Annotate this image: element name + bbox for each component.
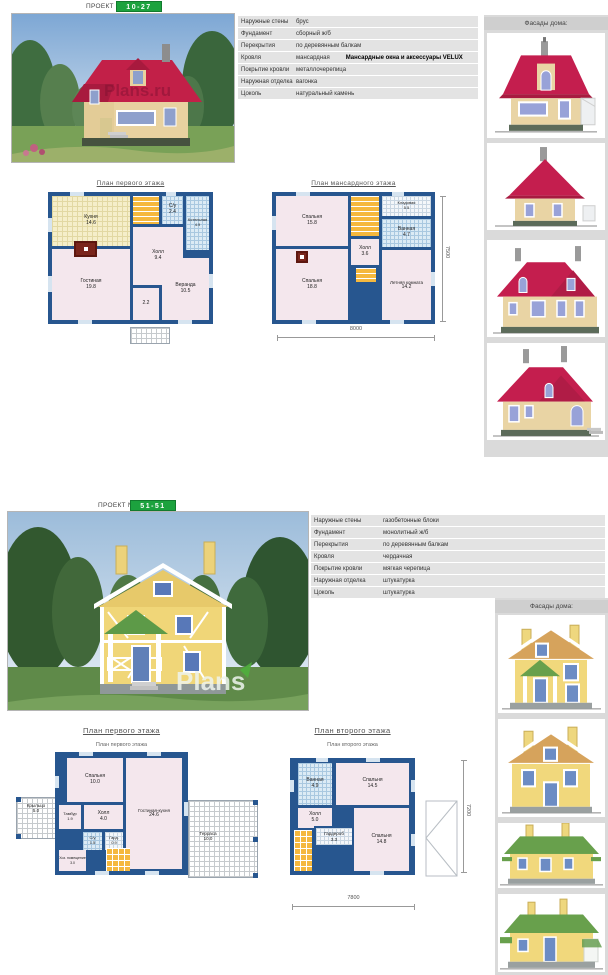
- terrace-area: Терраса10.0: [188, 800, 258, 878]
- spec-value: чердачная: [383, 554, 605, 560]
- porch-post: [16, 797, 21, 802]
- facade-back-view: [498, 719, 605, 817]
- window-mark: [78, 320, 92, 324]
- facades-title: Фасады дома:: [484, 17, 608, 30]
- window-mark: [145, 871, 159, 875]
- room-storage: Кладовая5.5: [382, 196, 431, 216]
- window-mark: [48, 218, 52, 232]
- photo-watermark-1: Plans.ru: [104, 81, 171, 100]
- window-mark: [370, 871, 384, 875]
- velux-note: Мансардные окна и аксессуары VELUX: [346, 55, 463, 61]
- plan2-title: План второго этажа: [290, 726, 415, 735]
- porch-hatch: [130, 327, 170, 344]
- dimension-line: [463, 760, 464, 873]
- spec-row: Покрытие кровлиметаллочерепица: [238, 64, 478, 75]
- room-kitchen: Кухня14.6: [52, 196, 130, 246]
- room-living: Гостиная19.8: [52, 249, 130, 320]
- spec-label: Покрытие кровли: [238, 67, 296, 73]
- facade-side-2-image: [487, 343, 605, 440]
- terrace-post: [253, 837, 258, 842]
- terrace-post: [253, 800, 258, 805]
- spec-value: по деревянным балкам: [296, 43, 478, 49]
- spec-row: Перекрытияпо деревянным балкам: [238, 40, 478, 51]
- facades-panel-2: Фасады дома:: [495, 598, 608, 975]
- spec-row: Цокольнатуральный камень: [238, 88, 478, 99]
- facade-back-image: [498, 719, 605, 817]
- floor-plan-1-1: Кухня14.6 С/у2.4 Котельная4.9 Холл9.4 Го…: [48, 192, 213, 324]
- spec-label: Наружные стены: [311, 518, 383, 524]
- mini-stairs: [356, 268, 376, 282]
- window-mark: [48, 276, 52, 292]
- dimension-width: 7800: [292, 895, 415, 901]
- facade-side-view-1: [498, 823, 605, 888]
- spec-label: Кровля: [238, 55, 296, 61]
- spec-value: вагонка: [296, 79, 478, 85]
- spec-row: Наружные стеныбрус: [238, 16, 478, 27]
- window-mark: [209, 274, 213, 288]
- plan2-subtitle: План второго этажа: [290, 742, 415, 748]
- house-photo-1: Plans.ru: [12, 14, 234, 162]
- facade-side-1-image: [487, 240, 605, 337]
- spec-row: Покрытие кровлимягкая черепица: [311, 563, 605, 574]
- plan2-title: План мансардного этажа: [272, 180, 435, 187]
- spec-label: Цоколь: [238, 91, 296, 97]
- house-photo-2: Plans: [8, 512, 308, 710]
- floor-plan-2-1: Спальня10.0 Гостиная-кухня24.6 Тамбур1.9…: [55, 752, 188, 875]
- room-bedroom-2: Спальня18.8: [276, 249, 348, 320]
- room-porch: Крыльцо5.0: [17, 800, 55, 816]
- stairs: [133, 196, 159, 224]
- room-bedroom-2: Спальня14.8: [354, 808, 409, 871]
- window-mark: [316, 758, 328, 762]
- spec-row: Фундаментмонолитный ж/б: [311, 527, 605, 538]
- room-tambour: Тамбур1.9: [59, 805, 81, 829]
- room-hall: Холл5.0: [298, 808, 332, 828]
- window-mark: [392, 192, 404, 196]
- floor-plan-2-2: Ванная4.9 Спальня14.5 Холл5.0 Гардероб3.…: [290, 758, 415, 875]
- spec-label: Покрытие кровли: [311, 566, 383, 572]
- facade-front-view: [487, 33, 605, 138]
- facade-front-image: [498, 615, 605, 713]
- floor-plan-1-2: Спальня15.8 Кладовая5.5 Ванная4.7 Холл3.…: [272, 192, 435, 324]
- stairs: [294, 830, 312, 871]
- spec-label: Наружная отделка: [238, 79, 296, 85]
- room-bedroom-1: Спальня14.5: [336, 763, 409, 805]
- room-small: 2.2: [133, 288, 159, 320]
- garage-outline: [418, 800, 458, 877]
- facade-front-view: [498, 615, 605, 713]
- spec-value: натуральный камень: [296, 91, 478, 97]
- spec-row: Кровлячердачная: [311, 551, 605, 562]
- plan1-title: План первого этажа: [55, 726, 188, 735]
- spec-label: Фундамент: [311, 530, 383, 536]
- spec-table-1: Наружные стеныбрус Фундаментсборный ж/б …: [238, 16, 478, 100]
- stairs: [351, 196, 379, 236]
- room-living-kitchen: Гостиная-кухня24.6: [126, 758, 182, 869]
- facades-panel-1: Фасады дома:: [484, 15, 608, 457]
- fireplace-icon: [74, 241, 97, 257]
- spec-label: Наружная отделка: [311, 578, 383, 584]
- window-mark: [302, 320, 316, 324]
- facade-side-2-image: [498, 894, 605, 972]
- window-mark: [366, 758, 380, 762]
- room-veranda: Веранда10.5: [162, 258, 209, 320]
- spec-label: Перекрытия: [311, 542, 383, 548]
- spec-row: Перекрытияпо деревянным балкам: [311, 539, 605, 550]
- project-number-badge: 10-27: [116, 1, 162, 12]
- window-mark: [166, 192, 176, 196]
- spec-row: Наружная отделкавагонка: [238, 76, 478, 87]
- dimension-height: 7200: [465, 804, 471, 816]
- room-bathroom: Ванная4.7: [382, 219, 431, 247]
- spec-label: Цоколь: [311, 590, 383, 596]
- spec-row: Цокольштукатурка: [311, 587, 605, 598]
- room-bedroom: Спальня10.0: [67, 758, 123, 802]
- house-photo-1-image: Plans.ru: [12, 14, 234, 162]
- photo-watermark-2: Plans: [176, 666, 245, 696]
- window-mark: [411, 834, 415, 846]
- window-mark: [390, 320, 404, 324]
- window-mark: [431, 272, 435, 286]
- spec-table-2: Наружные стеныгазобетонные блоки Фундаме…: [311, 515, 605, 599]
- room-bedroom-1: Спальня15.8: [276, 196, 348, 246]
- plan1-subtitle: План первого этажа: [55, 742, 188, 748]
- spec-row: Фундаментсборный ж/б: [238, 28, 478, 39]
- dimension-height: 7500: [444, 246, 450, 258]
- dimension-width: 8000: [277, 326, 435, 332]
- window-mark: [79, 752, 93, 756]
- room-summer: Летняя комната14.2: [382, 250, 431, 320]
- house-photo-2-image: Plans: [8, 512, 308, 710]
- dimension-line: [442, 196, 443, 322]
- spec-value: брус: [296, 19, 478, 25]
- spec-value: штукатурка: [383, 578, 605, 584]
- spec-row: Наружные стеныгазобетонные блоки: [311, 515, 605, 526]
- dimension-line: [292, 906, 415, 907]
- spec-value: мансарднаяМансардные окна и аксессуары V…: [296, 55, 478, 61]
- porch-area: Крыльцо5.0: [16, 797, 56, 839]
- room-boiler: Котельная4.9: [186, 196, 209, 250]
- window-mark: [296, 192, 310, 196]
- facade-side-view-1: [487, 240, 605, 337]
- spec-value: по деревянным балкам: [383, 542, 605, 548]
- window-mark: [272, 216, 276, 230]
- fireplace-icon: [296, 251, 308, 263]
- spec-value: сборный ж/б: [296, 31, 478, 37]
- window-mark: [411, 780, 415, 792]
- room-utility: Хоз. помещение3.0: [59, 850, 86, 871]
- plan1-title: План первого этажа: [48, 180, 213, 187]
- spec-label: Кровля: [311, 554, 383, 560]
- spec-row: Наружная отделкаштукатурка: [311, 575, 605, 586]
- room-terrace: Терраса10.0: [191, 827, 225, 845]
- room-wc: С/у1.5: [83, 832, 102, 850]
- terrace-post: [253, 873, 258, 878]
- porch-post: [16, 834, 21, 839]
- facade-side-1-image: [498, 823, 605, 888]
- spec-value: монолитный ж/б: [383, 530, 605, 536]
- window-mark: [290, 780, 294, 792]
- spec-value: газобетонные блоки: [383, 518, 605, 524]
- facade-side-view-2: [487, 343, 605, 440]
- spec-value: мягкая черепица: [383, 566, 605, 572]
- spec-label: Наружные стены: [238, 19, 296, 25]
- spec-value: металлочерепица: [296, 67, 478, 73]
- room-wc: С/у2.4: [162, 196, 183, 224]
- spec-value: штукатурка: [383, 590, 605, 596]
- window-mark: [178, 320, 192, 324]
- spec-value-text: мансардная: [296, 55, 330, 61]
- spec-label: Фундамент: [238, 31, 296, 37]
- window-mark: [70, 192, 84, 196]
- facade-side-view-2: [498, 894, 605, 972]
- window-mark: [147, 752, 161, 756]
- window-mark: [184, 802, 188, 816]
- project-number-badge: 51-51: [130, 500, 176, 511]
- room-bathroom: Ванная4.9: [298, 763, 332, 805]
- dimension-line: [277, 337, 435, 338]
- catalog-page: ПРОЕКТ № 10-27: [0, 0, 608, 975]
- facades-title: Фасады дома:: [495, 600, 608, 613]
- facade-front-image: [487, 33, 605, 138]
- facade-back-image: [487, 143, 605, 230]
- window-mark: [55, 776, 59, 788]
- spec-row: КровлямансарднаяМансардные окна и аксесс…: [238, 52, 478, 63]
- room-hall: Холл3.6: [351, 239, 379, 265]
- window-mark: [95, 871, 109, 875]
- stairs: [106, 848, 130, 871]
- facade-back-view: [487, 143, 605, 230]
- spec-label: Перекрытия: [238, 43, 296, 49]
- room-closet: Гардероб3.3: [314, 826, 354, 847]
- room-hall: Холл4.0: [84, 805, 123, 829]
